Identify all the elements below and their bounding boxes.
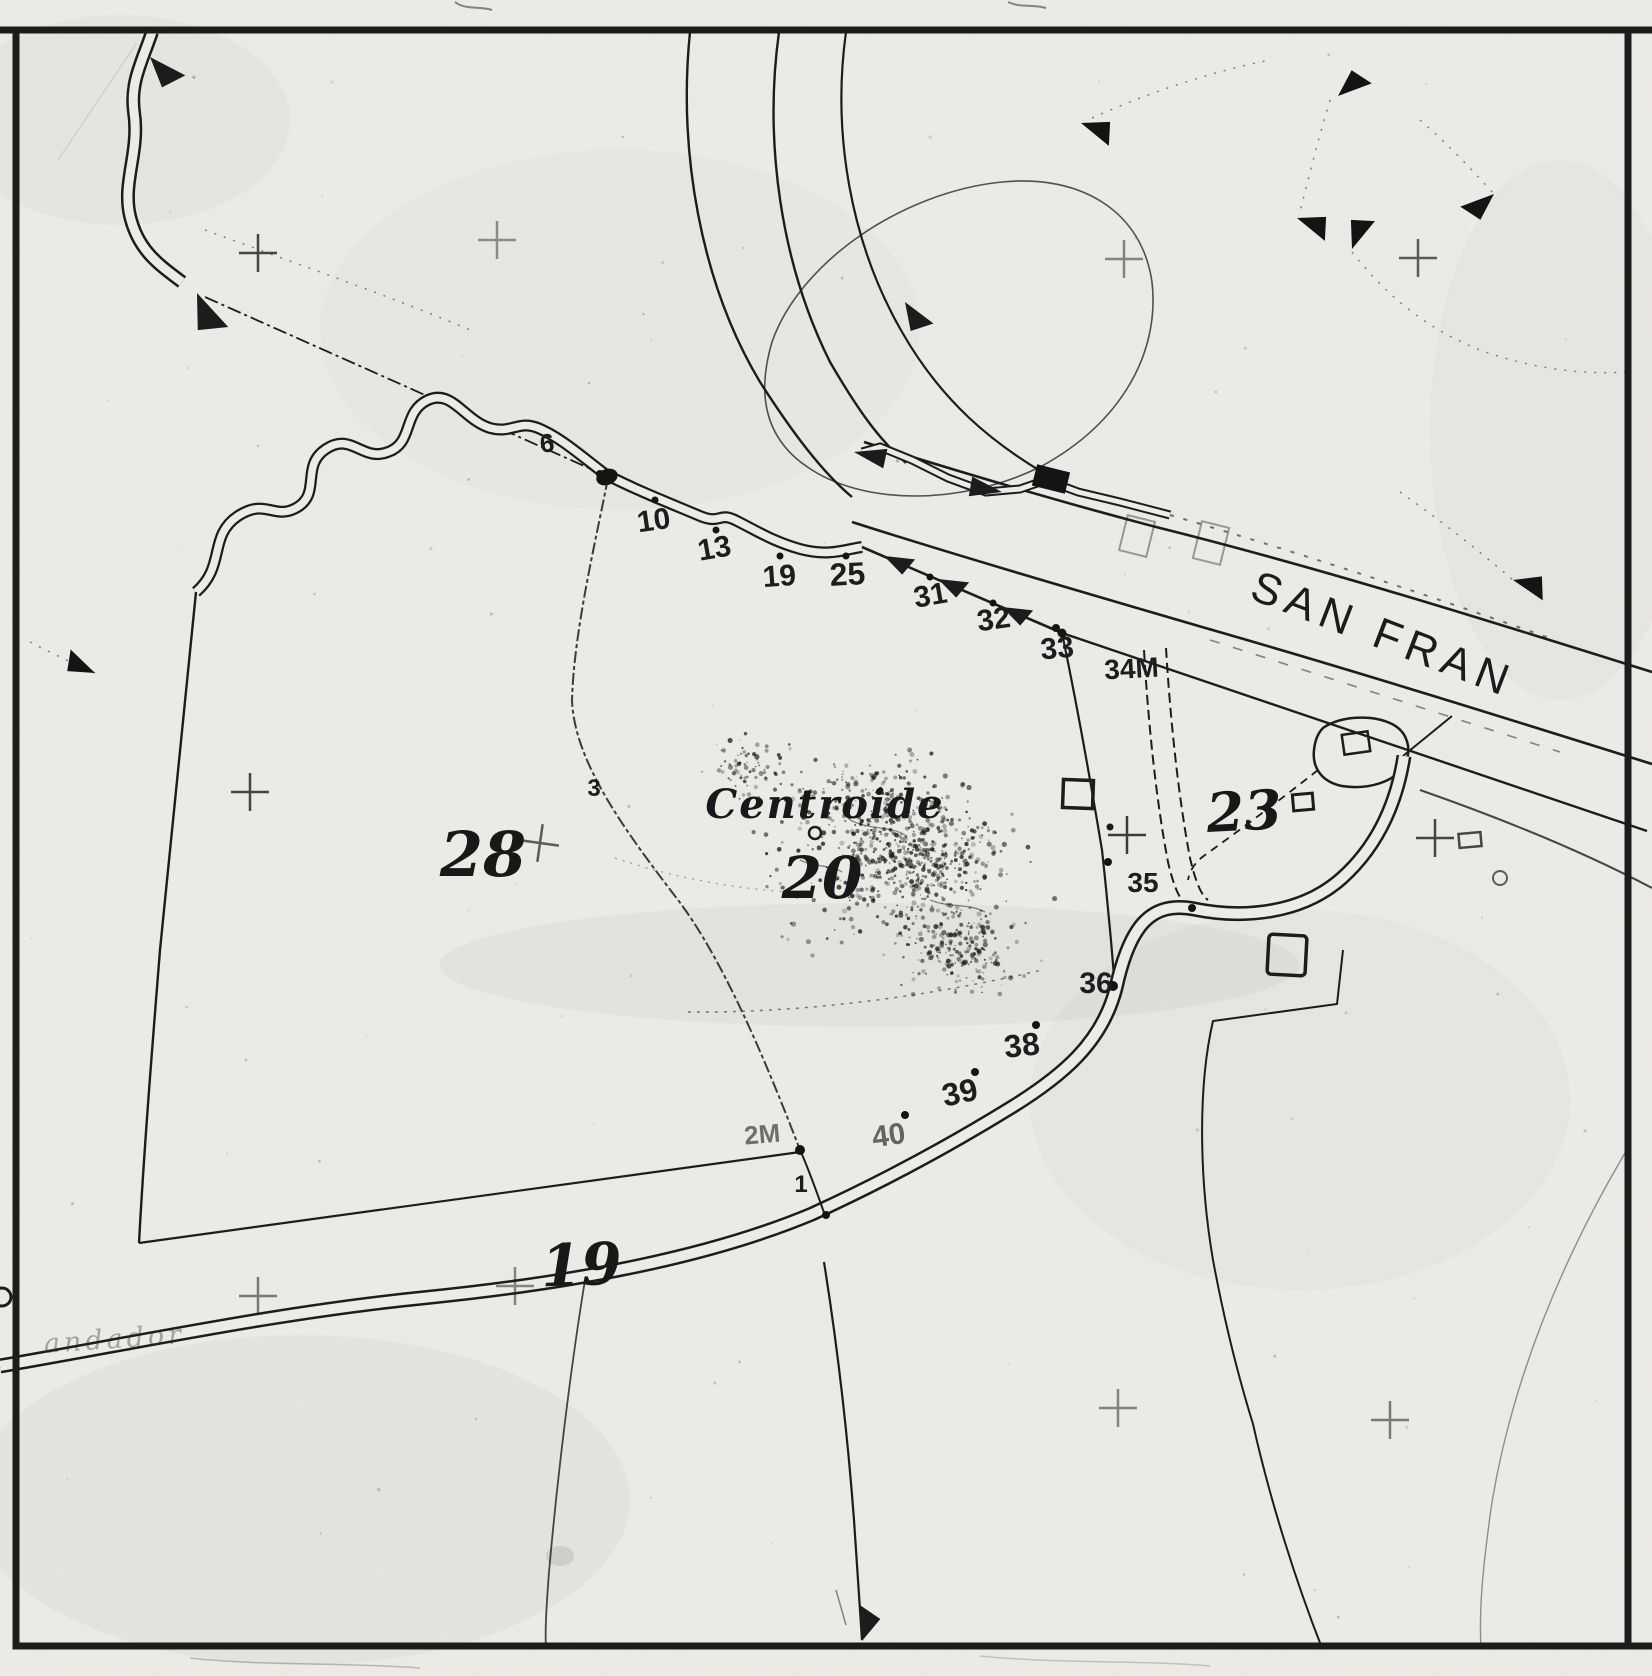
centroide-label: Centroide	[705, 781, 944, 828]
point-label-2m: 2M	[743, 1118, 782, 1151]
point-label-1: 1	[794, 1171, 807, 1198]
point-label-34m: 34M	[1103, 652, 1159, 686]
point-label-39: 39	[939, 1071, 981, 1114]
parcel-28-label: 28	[439, 818, 526, 891]
point-label-36: 36	[1079, 967, 1112, 1000]
parcel-23-label: 23	[1204, 777, 1283, 845]
paper-grain	[0, 0, 1652, 1676]
cadastral-map-svg: 28 20 23 19 Centroide SAN FRAN andador 6…	[0, 0, 1652, 1676]
parcel-20-label: 20	[781, 844, 863, 912]
parcel-19-label: 19	[540, 1230, 623, 1301]
point-label-33: 33	[1039, 631, 1075, 667]
survey-dot	[1107, 824, 1114, 831]
point-label-31: 31	[911, 576, 950, 614]
point-label-38: 38	[1002, 1025, 1041, 1065]
scanned-map-page: 28 20 23 19 Centroide SAN FRAN andador 6…	[0, 0, 1652, 1676]
point-label-40: 40	[870, 1117, 908, 1154]
point-label-32: 32	[975, 601, 1013, 638]
point-label-19: 19	[762, 559, 798, 594]
point-label-25: 25	[829, 555, 866, 593]
point-label-10: 10	[635, 502, 673, 539]
point-label-35: 35	[1127, 867, 1158, 898]
point-label-13: 13	[695, 529, 734, 567]
point-label-3: 3	[587, 775, 600, 802]
